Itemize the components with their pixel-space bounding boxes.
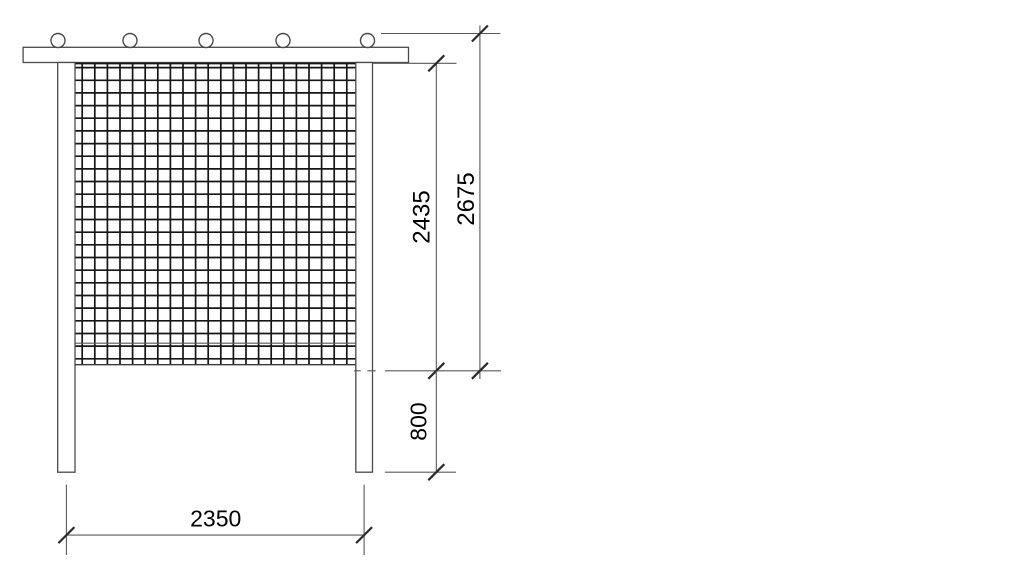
svg-text:800: 800 — [406, 402, 432, 440]
svg-text:2350: 2350 — [190, 505, 241, 531]
svg-text:2675: 2675 — [453, 172, 480, 225]
svg-text:2435: 2435 — [409, 190, 436, 243]
